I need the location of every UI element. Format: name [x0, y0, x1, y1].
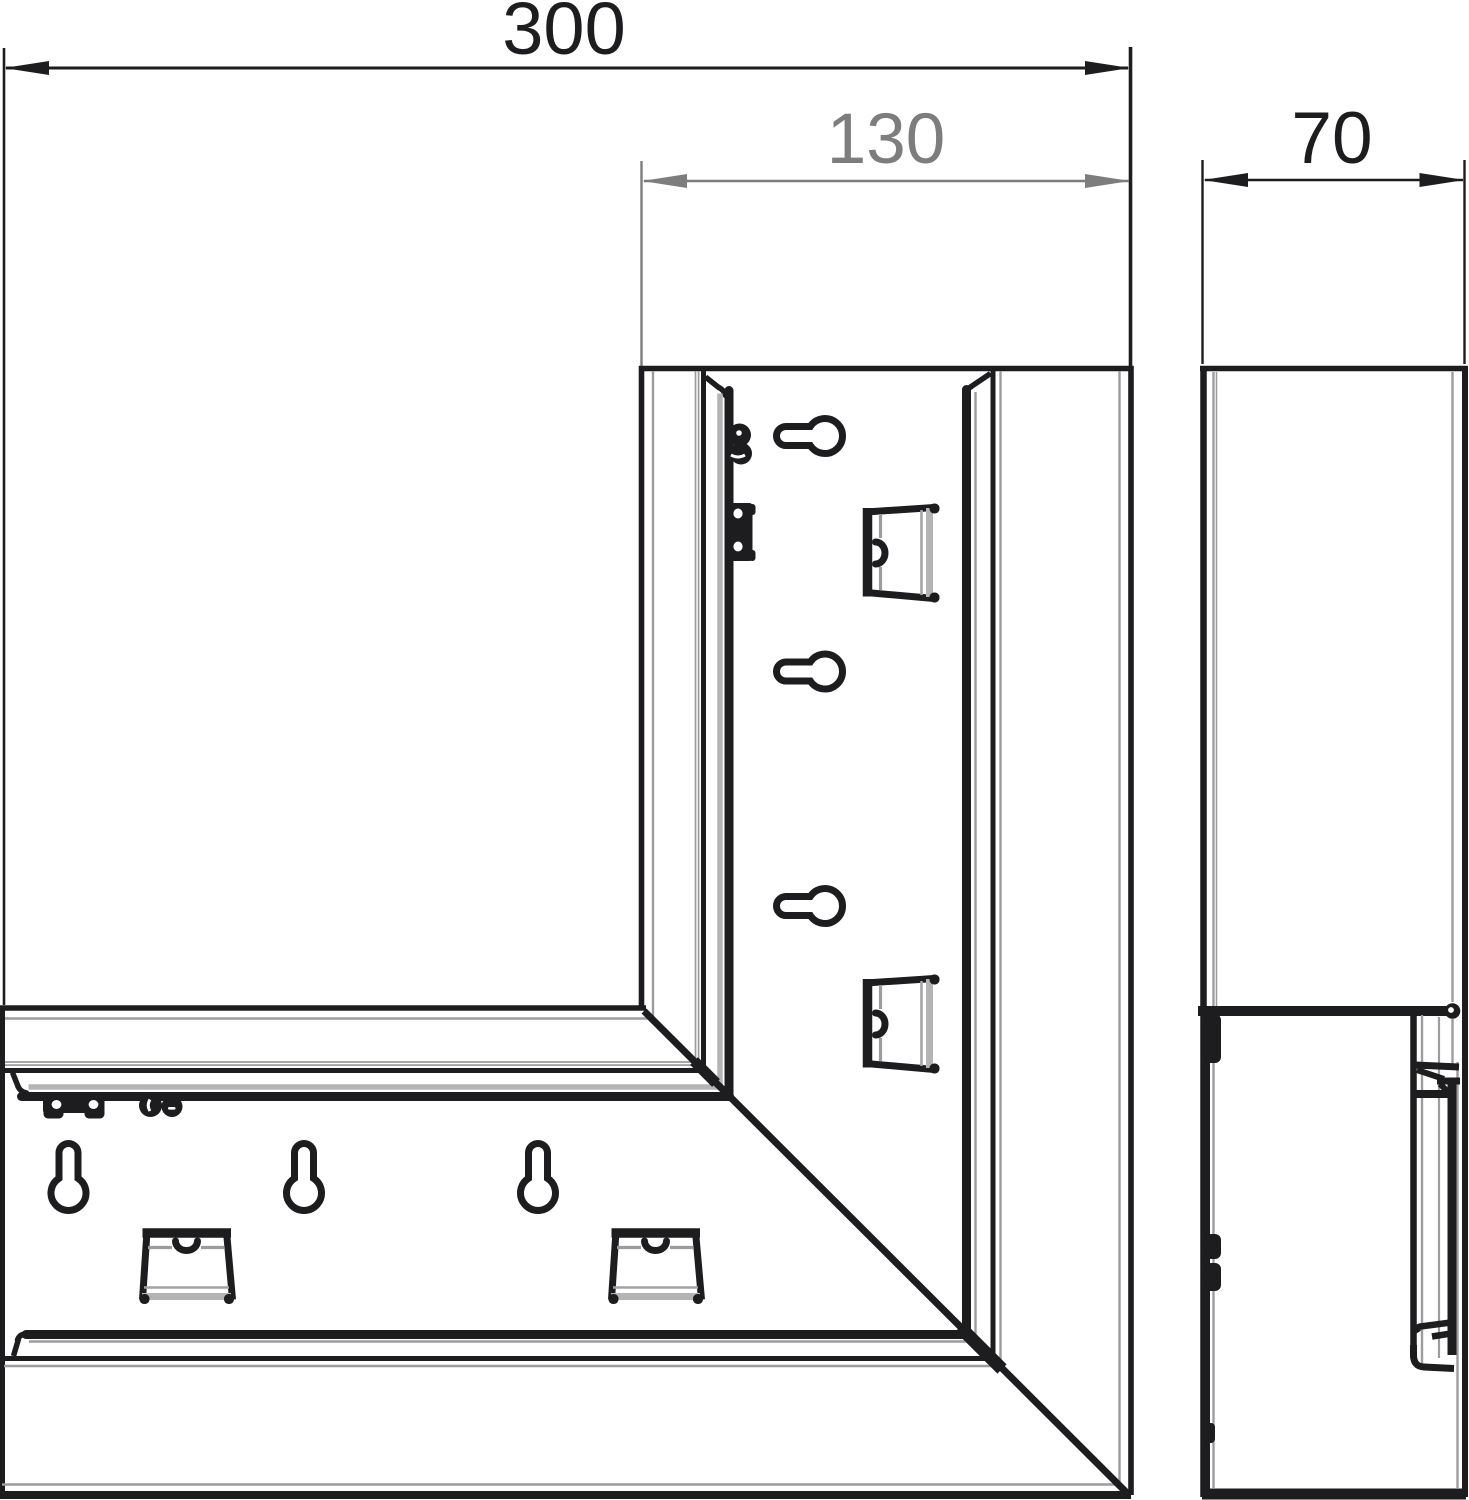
svg-text:130: 130 — [827, 100, 945, 179]
svg-text:70: 70 — [1291, 98, 1372, 179]
svg-text:300: 300 — [502, 0, 625, 70]
